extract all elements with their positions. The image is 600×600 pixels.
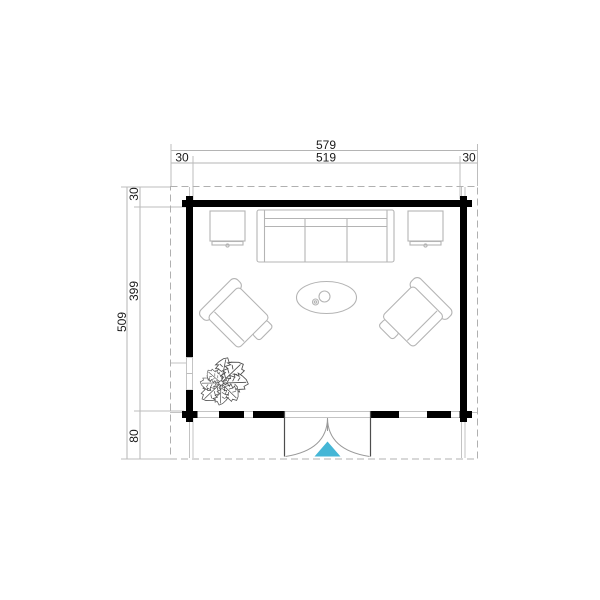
coffee-table xyxy=(297,282,357,314)
side-table-left xyxy=(210,211,245,247)
dim-side-bottom-offset: 80 xyxy=(127,429,141,443)
wall-left-upper xyxy=(186,196,193,357)
wall-bottom-seg6 xyxy=(460,411,473,418)
wall-bottom-seg4 xyxy=(371,411,400,418)
armchair-left xyxy=(197,276,278,357)
potted-plant xyxy=(197,355,250,406)
dim-side-overall: 509 xyxy=(115,312,129,332)
dim-top-right-offset: 30 xyxy=(462,151,476,165)
floor-plan-page: 579 30 519 30 509 30 399 80 xyxy=(0,0,600,600)
dimension-left xyxy=(121,187,192,459)
armchair-right xyxy=(373,275,454,356)
sofa xyxy=(257,210,394,262)
wall-bottom-seg3 xyxy=(253,411,285,418)
dim-top-inner: 519 xyxy=(316,151,336,165)
dim-top-left-offset: 30 xyxy=(175,151,189,165)
wall-top xyxy=(182,200,472,207)
entrance-arrow-icon xyxy=(315,442,341,457)
side-table-right xyxy=(408,211,443,247)
wall-bottom-seg5 xyxy=(427,411,451,418)
floor-plan-canvas: 579 30 519 30 509 30 399 80 xyxy=(0,0,600,600)
dim-side-inner: 399 xyxy=(127,281,141,301)
dim-side-top-offset: 30 xyxy=(127,187,141,201)
wall-bottom-seg1 xyxy=(182,411,198,418)
wall-bottom-seg2 xyxy=(219,411,244,418)
wall-right xyxy=(460,196,467,422)
